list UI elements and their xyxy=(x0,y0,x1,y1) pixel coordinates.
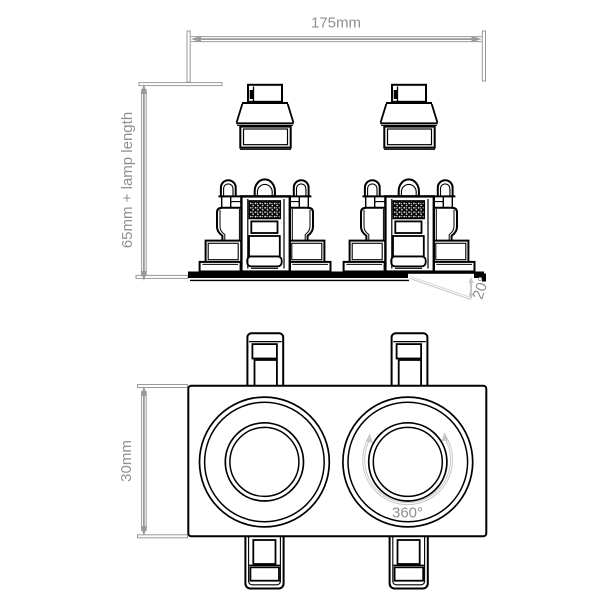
svg-text:30mm: 30mm xyxy=(118,440,135,482)
svg-text:20°: 20° xyxy=(470,275,493,302)
svg-text:65mm + lamp length: 65mm + lamp length xyxy=(119,112,136,248)
svg-text:360°: 360° xyxy=(392,505,423,522)
svg-text:175mm: 175mm xyxy=(311,15,361,32)
